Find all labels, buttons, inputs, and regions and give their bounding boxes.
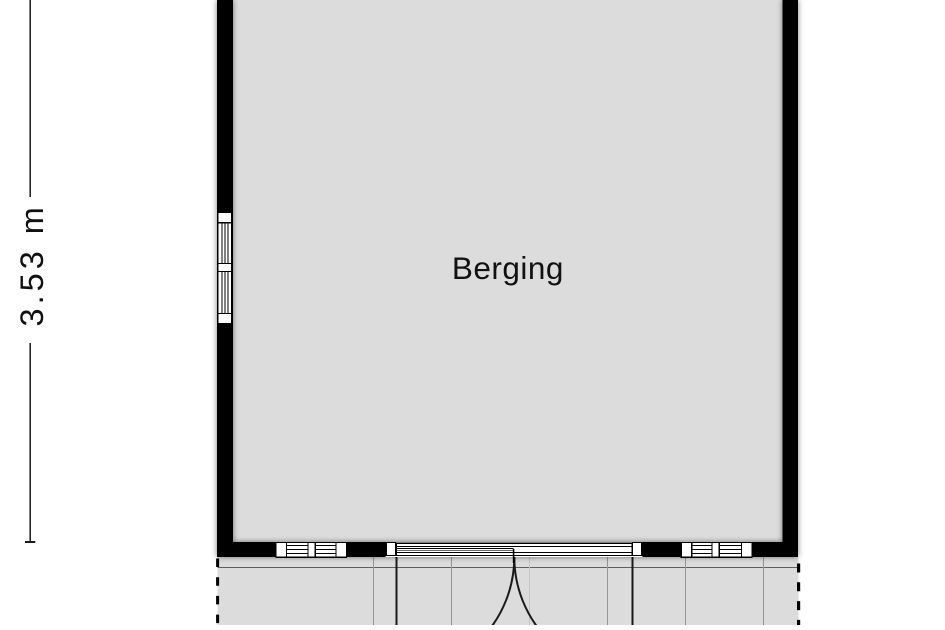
- svg-text:Berging: Berging: [452, 250, 564, 286]
- svg-text:3.53 m: 3.53 m: [14, 203, 50, 326]
